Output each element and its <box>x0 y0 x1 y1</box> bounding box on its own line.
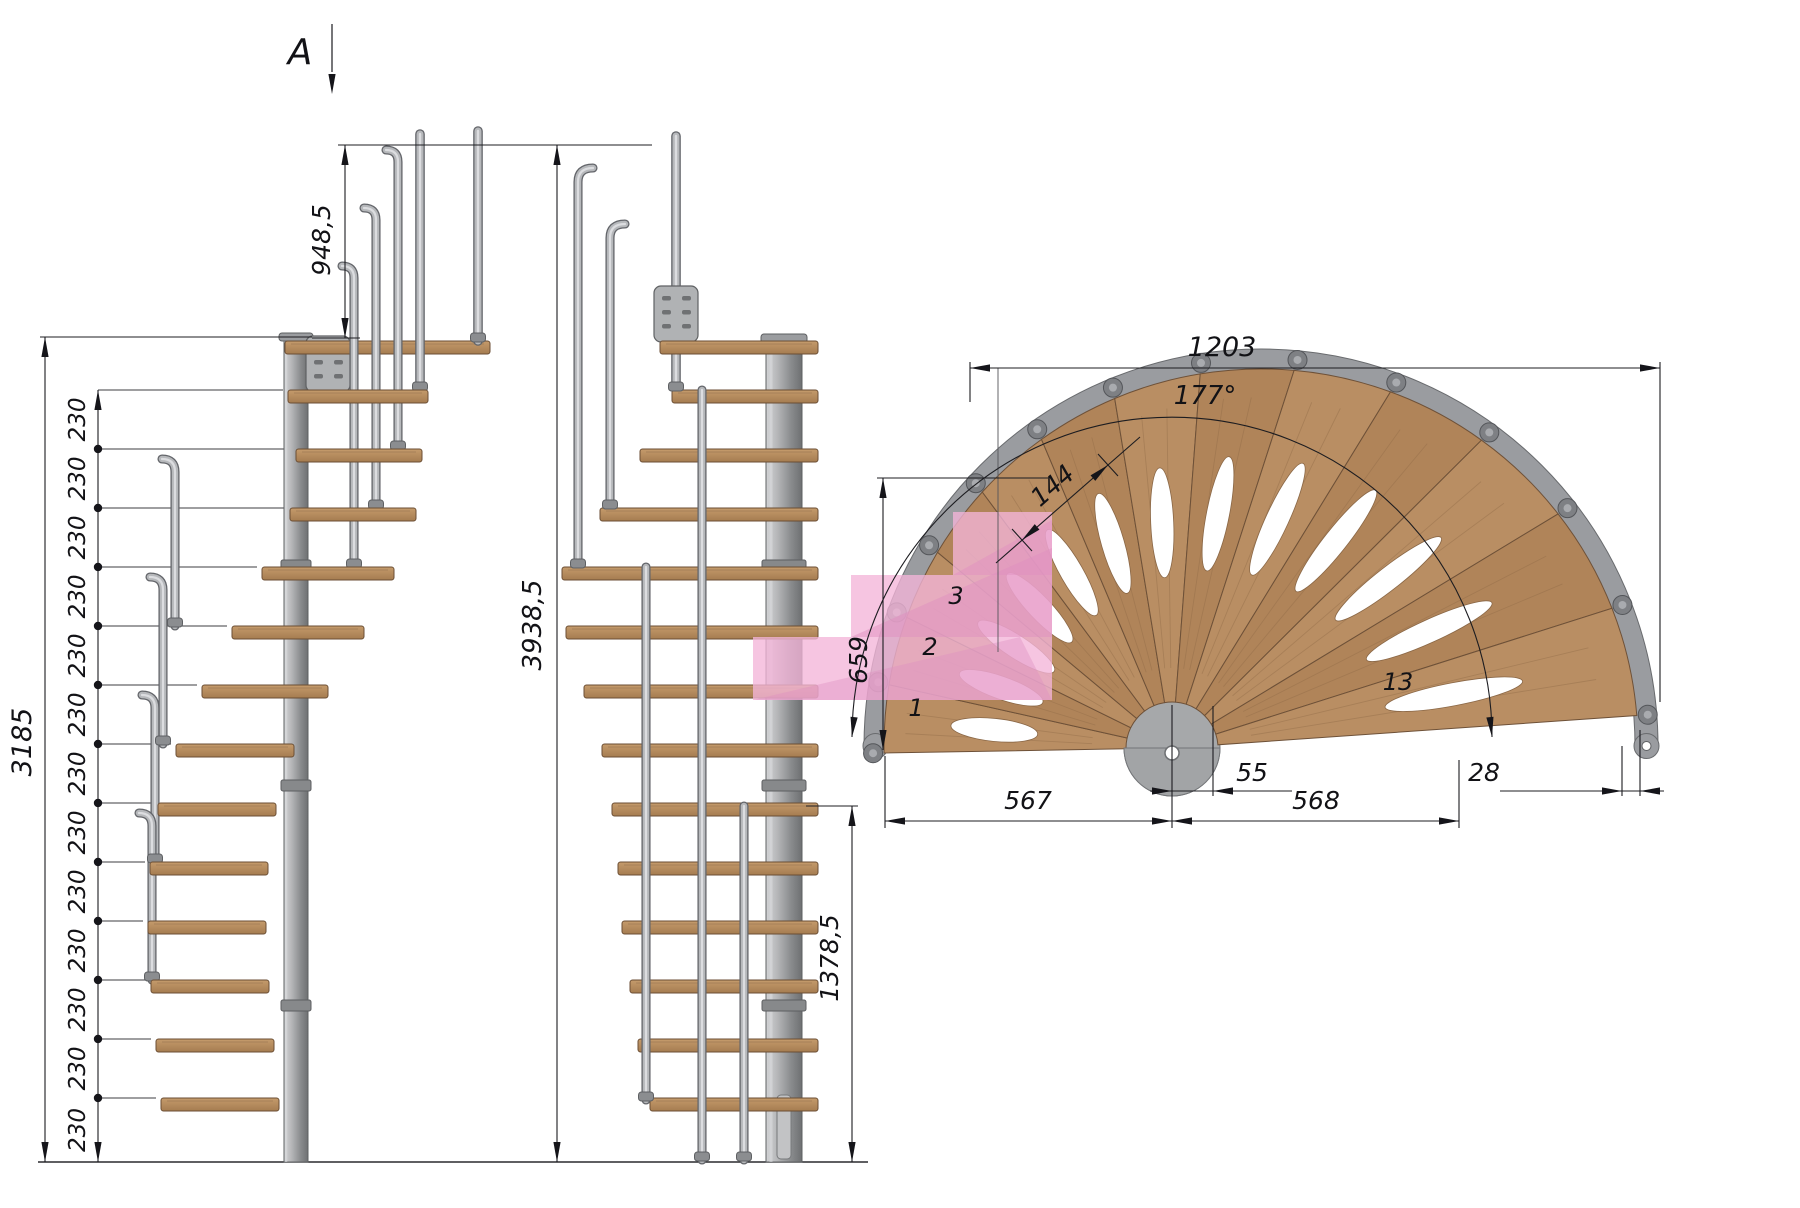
dimension-arrow <box>1602 787 1622 794</box>
dimension-arrow <box>1640 787 1660 794</box>
drawing-canvas: 3185230230230230230230230230230230230230… <box>0 0 1800 1208</box>
dimension-arrow <box>848 806 855 826</box>
dim-lower-flight-label: 1378,5 <box>815 914 844 1001</box>
left-elevation <box>98 131 490 1162</box>
dim-section-depth-label: 659 <box>844 636 873 684</box>
dim-total-height-label: 3185 <box>7 708 38 777</box>
dimension-arrow <box>885 817 905 824</box>
dim-rise-label-11: 230 <box>65 988 91 1032</box>
tread-number-3: 3 <box>948 582 963 610</box>
dim-rise-label-8: 230 <box>65 811 91 855</box>
dim-rise-label-6: 230 <box>65 693 91 737</box>
dimension-arrow <box>879 478 886 498</box>
dimension-arrow <box>41 1142 48 1162</box>
dim-rise-label-3: 230 <box>65 516 91 560</box>
dim-rise-label-4: 230 <box>65 575 91 619</box>
dim-overall-height-label: 3938,5 <box>518 580 548 671</box>
dimension-arrow <box>1152 817 1172 824</box>
dimension-arrow <box>1640 364 1660 371</box>
tread-number-1: 1 <box>908 694 923 722</box>
dimension-arrow <box>553 1142 560 1162</box>
dimension-arrow <box>1172 817 1192 824</box>
dimension-arrow <box>328 74 335 94</box>
dimension-arrow <box>94 1142 101 1162</box>
section-marker-label: A <box>286 32 313 73</box>
dim-overall-width-label: 1203 <box>1188 332 1257 363</box>
dimension-arrow <box>41 337 48 357</box>
dimension-arrow <box>94 390 101 410</box>
dim-rise-label-12: 230 <box>65 1047 91 1091</box>
dimension-arrow <box>1439 817 1459 824</box>
tread-number-13: 13 <box>1383 668 1414 696</box>
technical-drawing-svg: 3185230230230230230230230230230230230230… <box>0 0 1800 1208</box>
dimension-arrow <box>970 364 990 371</box>
dim-rise-label-2: 230 <box>65 457 91 501</box>
dim-rise-label-13: 230 <box>65 1108 91 1152</box>
dim-rise-label-9: 230 <box>65 870 91 914</box>
dim-center-offset-label: 55 <box>1236 758 1268 787</box>
dim-rise-label-10: 230 <box>65 929 91 973</box>
dim-rotation-angle-label: 177° <box>1174 381 1237 411</box>
dim-right-span-label: 568 <box>1292 786 1340 815</box>
dim-rise-label-5: 230 <box>65 634 91 678</box>
dim-rise-label-7: 230 <box>65 752 91 796</box>
dim-left-span-label: 567 <box>1004 786 1052 815</box>
section-marker: A <box>286 24 336 94</box>
tread-number-2: 2 <box>922 633 937 661</box>
dimension-arrow <box>1213 787 1233 794</box>
dimension-arrow <box>341 145 348 165</box>
dim-edge-offset-label: 28 <box>1468 758 1500 787</box>
dim-rise-label-1: 230 <box>65 398 91 442</box>
dimension-arrow <box>553 145 560 165</box>
dimension-arrow <box>341 318 348 338</box>
dim-rail-height-label: 948,5 <box>307 204 336 276</box>
dimension-arrow <box>848 1142 855 1162</box>
